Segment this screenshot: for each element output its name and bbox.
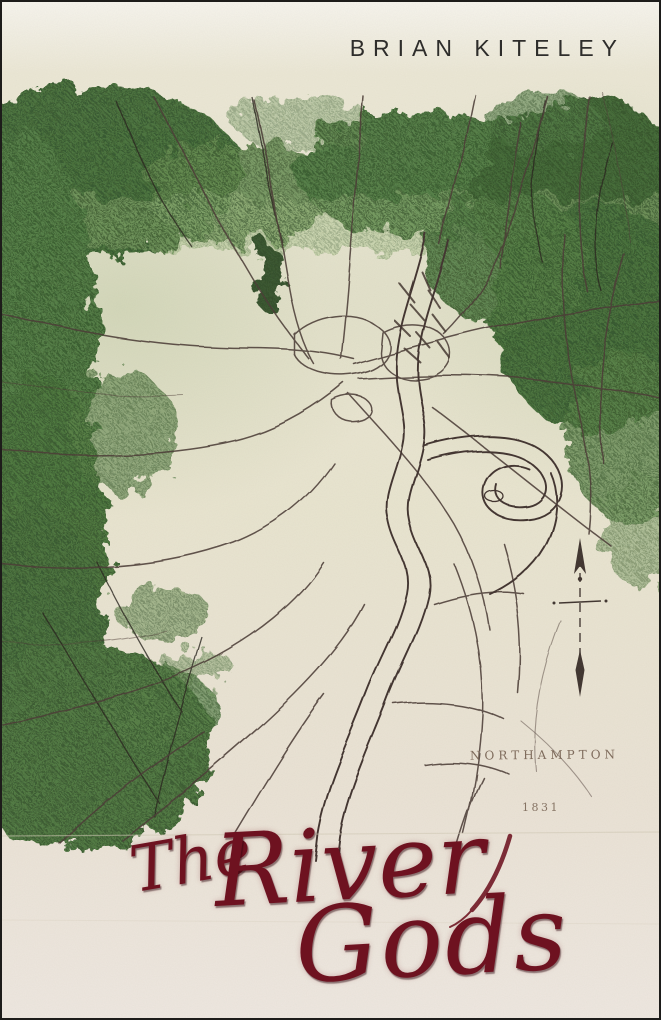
title-word-gods: Gods [292,871,572,1007]
map-label-northampton: NORTHAMPTON [470,747,619,762]
author-name: BRIAN KITELEY [350,35,625,62]
map-label-year: 1831 [522,801,560,814]
book-cover: BRIAN KITELEY NORTHAMPTON 1831 The River… [0,0,661,1020]
